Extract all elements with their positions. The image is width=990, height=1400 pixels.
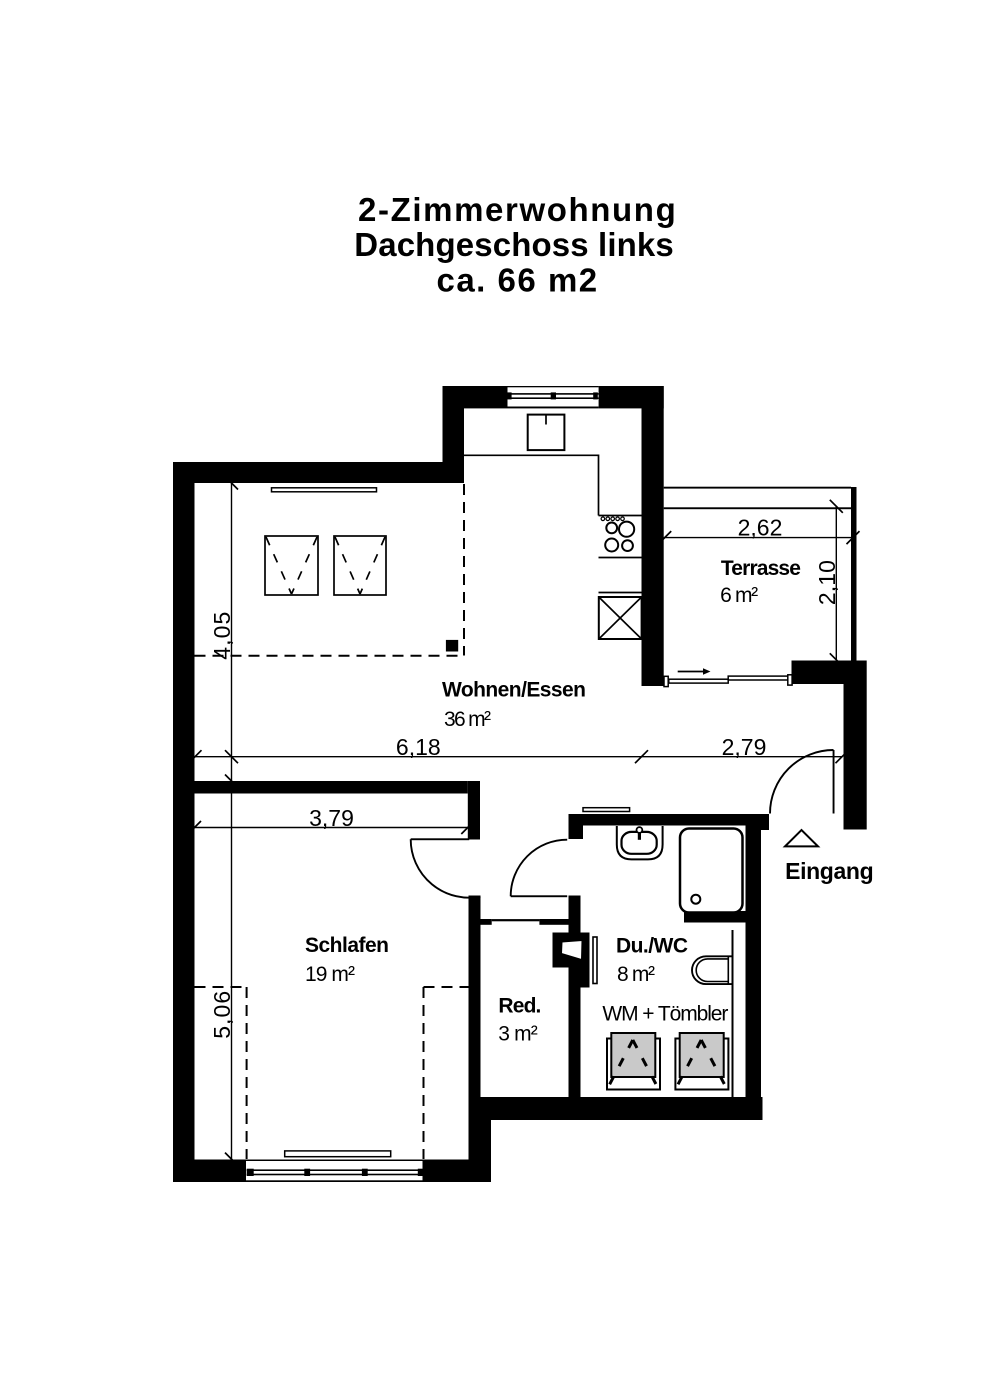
svg-text:2-Zimmerwohnung: 2-Zimmerwohnung — [358, 191, 676, 228]
svg-text:5,06: 5,06 — [209, 991, 235, 1039]
svg-text:Wohnen/Essen: Wohnen/Essen — [442, 679, 586, 702]
svg-text:2,62: 2,62 — [738, 515, 783, 541]
svg-text:Terrasse: Terrasse — [721, 557, 801, 580]
svg-text:Eingang: Eingang — [785, 858, 874, 884]
svg-text:ca. 66 m2: ca. 66 m2 — [436, 262, 597, 299]
svg-text:6 m²: 6 m² — [720, 584, 758, 607]
svg-text:WM + Tömbler: WM + Tömbler — [602, 1003, 728, 1026]
svg-text:2,79: 2,79 — [722, 734, 767, 760]
svg-text:3 m²: 3 m² — [498, 1023, 538, 1046]
svg-text:6,18: 6,18 — [396, 734, 441, 760]
svg-text:8 m²: 8 m² — [617, 963, 655, 986]
svg-text:Red.: Red. — [498, 995, 541, 1018]
svg-text:2,10: 2,10 — [814, 560, 840, 605]
svg-text:3,79: 3,79 — [309, 805, 354, 831]
svg-text:19 m²: 19 m² — [305, 963, 355, 986]
svg-text:36 m²: 36 m² — [444, 708, 491, 731]
svg-text:4,05: 4,05 — [209, 612, 235, 660]
svg-text:Schlafen: Schlafen — [305, 934, 389, 957]
svg-text:Du./WC: Du./WC — [616, 935, 688, 958]
svg-text:Dachgeschoss links: Dachgeschoss links — [354, 226, 674, 263]
